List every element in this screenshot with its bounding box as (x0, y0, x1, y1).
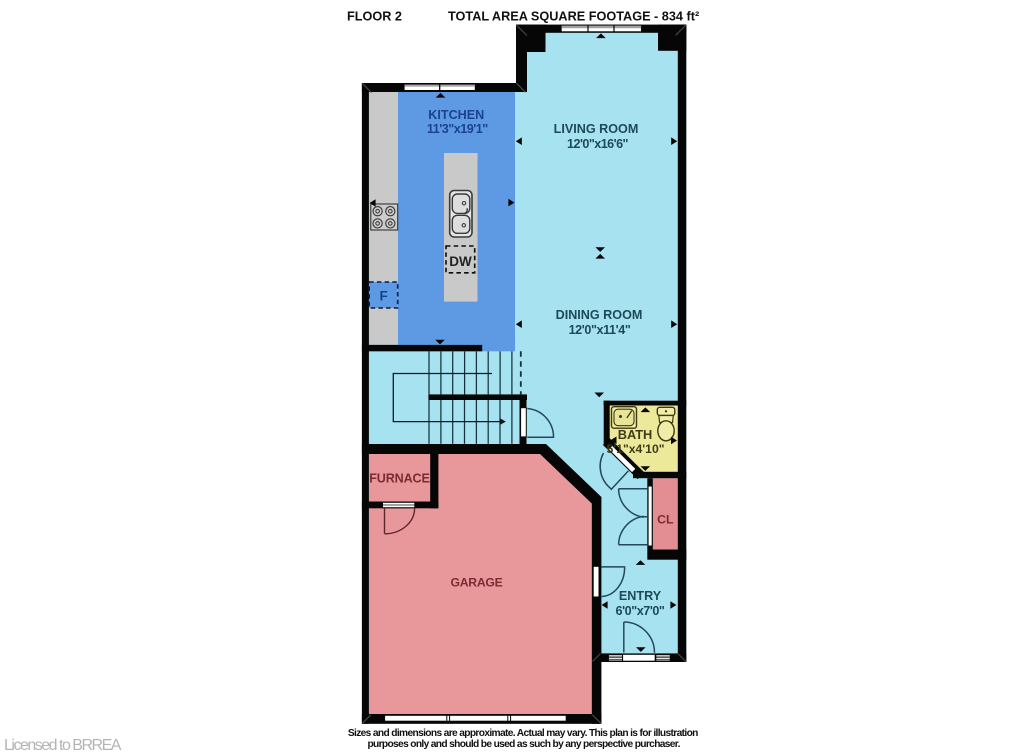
svg-text:12'0"x16'6": 12'0"x16'6" (567, 137, 628, 151)
svg-text:11'3"x19'1": 11'3"x19'1" (427, 122, 488, 136)
svg-text:LIVING ROOM: LIVING ROOM (554, 122, 639, 136)
svg-text:ENTRY: ENTRY (619, 589, 662, 603)
svg-text:DW: DW (449, 254, 472, 269)
svg-text:Licensed to BRREA: Licensed to BRREA (4, 737, 122, 754)
svg-text:GARAGE: GARAGE (451, 576, 503, 590)
svg-text:F: F (379, 289, 387, 304)
svg-text:DINING ROOM: DINING ROOM (556, 308, 643, 322)
svg-text:TOTAL AREA SQUARE FOOTAGE - 83: TOTAL AREA SQUARE FOOTAGE - 834 ft² (448, 10, 699, 24)
svg-text:FURNACE: FURNACE (369, 472, 430, 486)
svg-text:purposes only and should be us: purposes only and should be used as such… (367, 739, 680, 750)
svg-text:FLOOR 2: FLOOR 2 (347, 10, 402, 24)
svg-text:5'1"x4'10": 5'1"x4'10" (606, 442, 664, 456)
svg-text:BATH: BATH (618, 427, 653, 442)
svg-text:6'0"x7'0": 6'0"x7'0" (616, 604, 665, 618)
svg-text:12'0"x11'4": 12'0"x11'4" (569, 323, 631, 337)
svg-text:CL: CL (657, 513, 674, 527)
svg-text:Sizes and dimensions are appro: Sizes and dimensions are approximate. Ac… (348, 728, 698, 739)
svg-text:KITCHEN: KITCHEN (428, 108, 484, 122)
